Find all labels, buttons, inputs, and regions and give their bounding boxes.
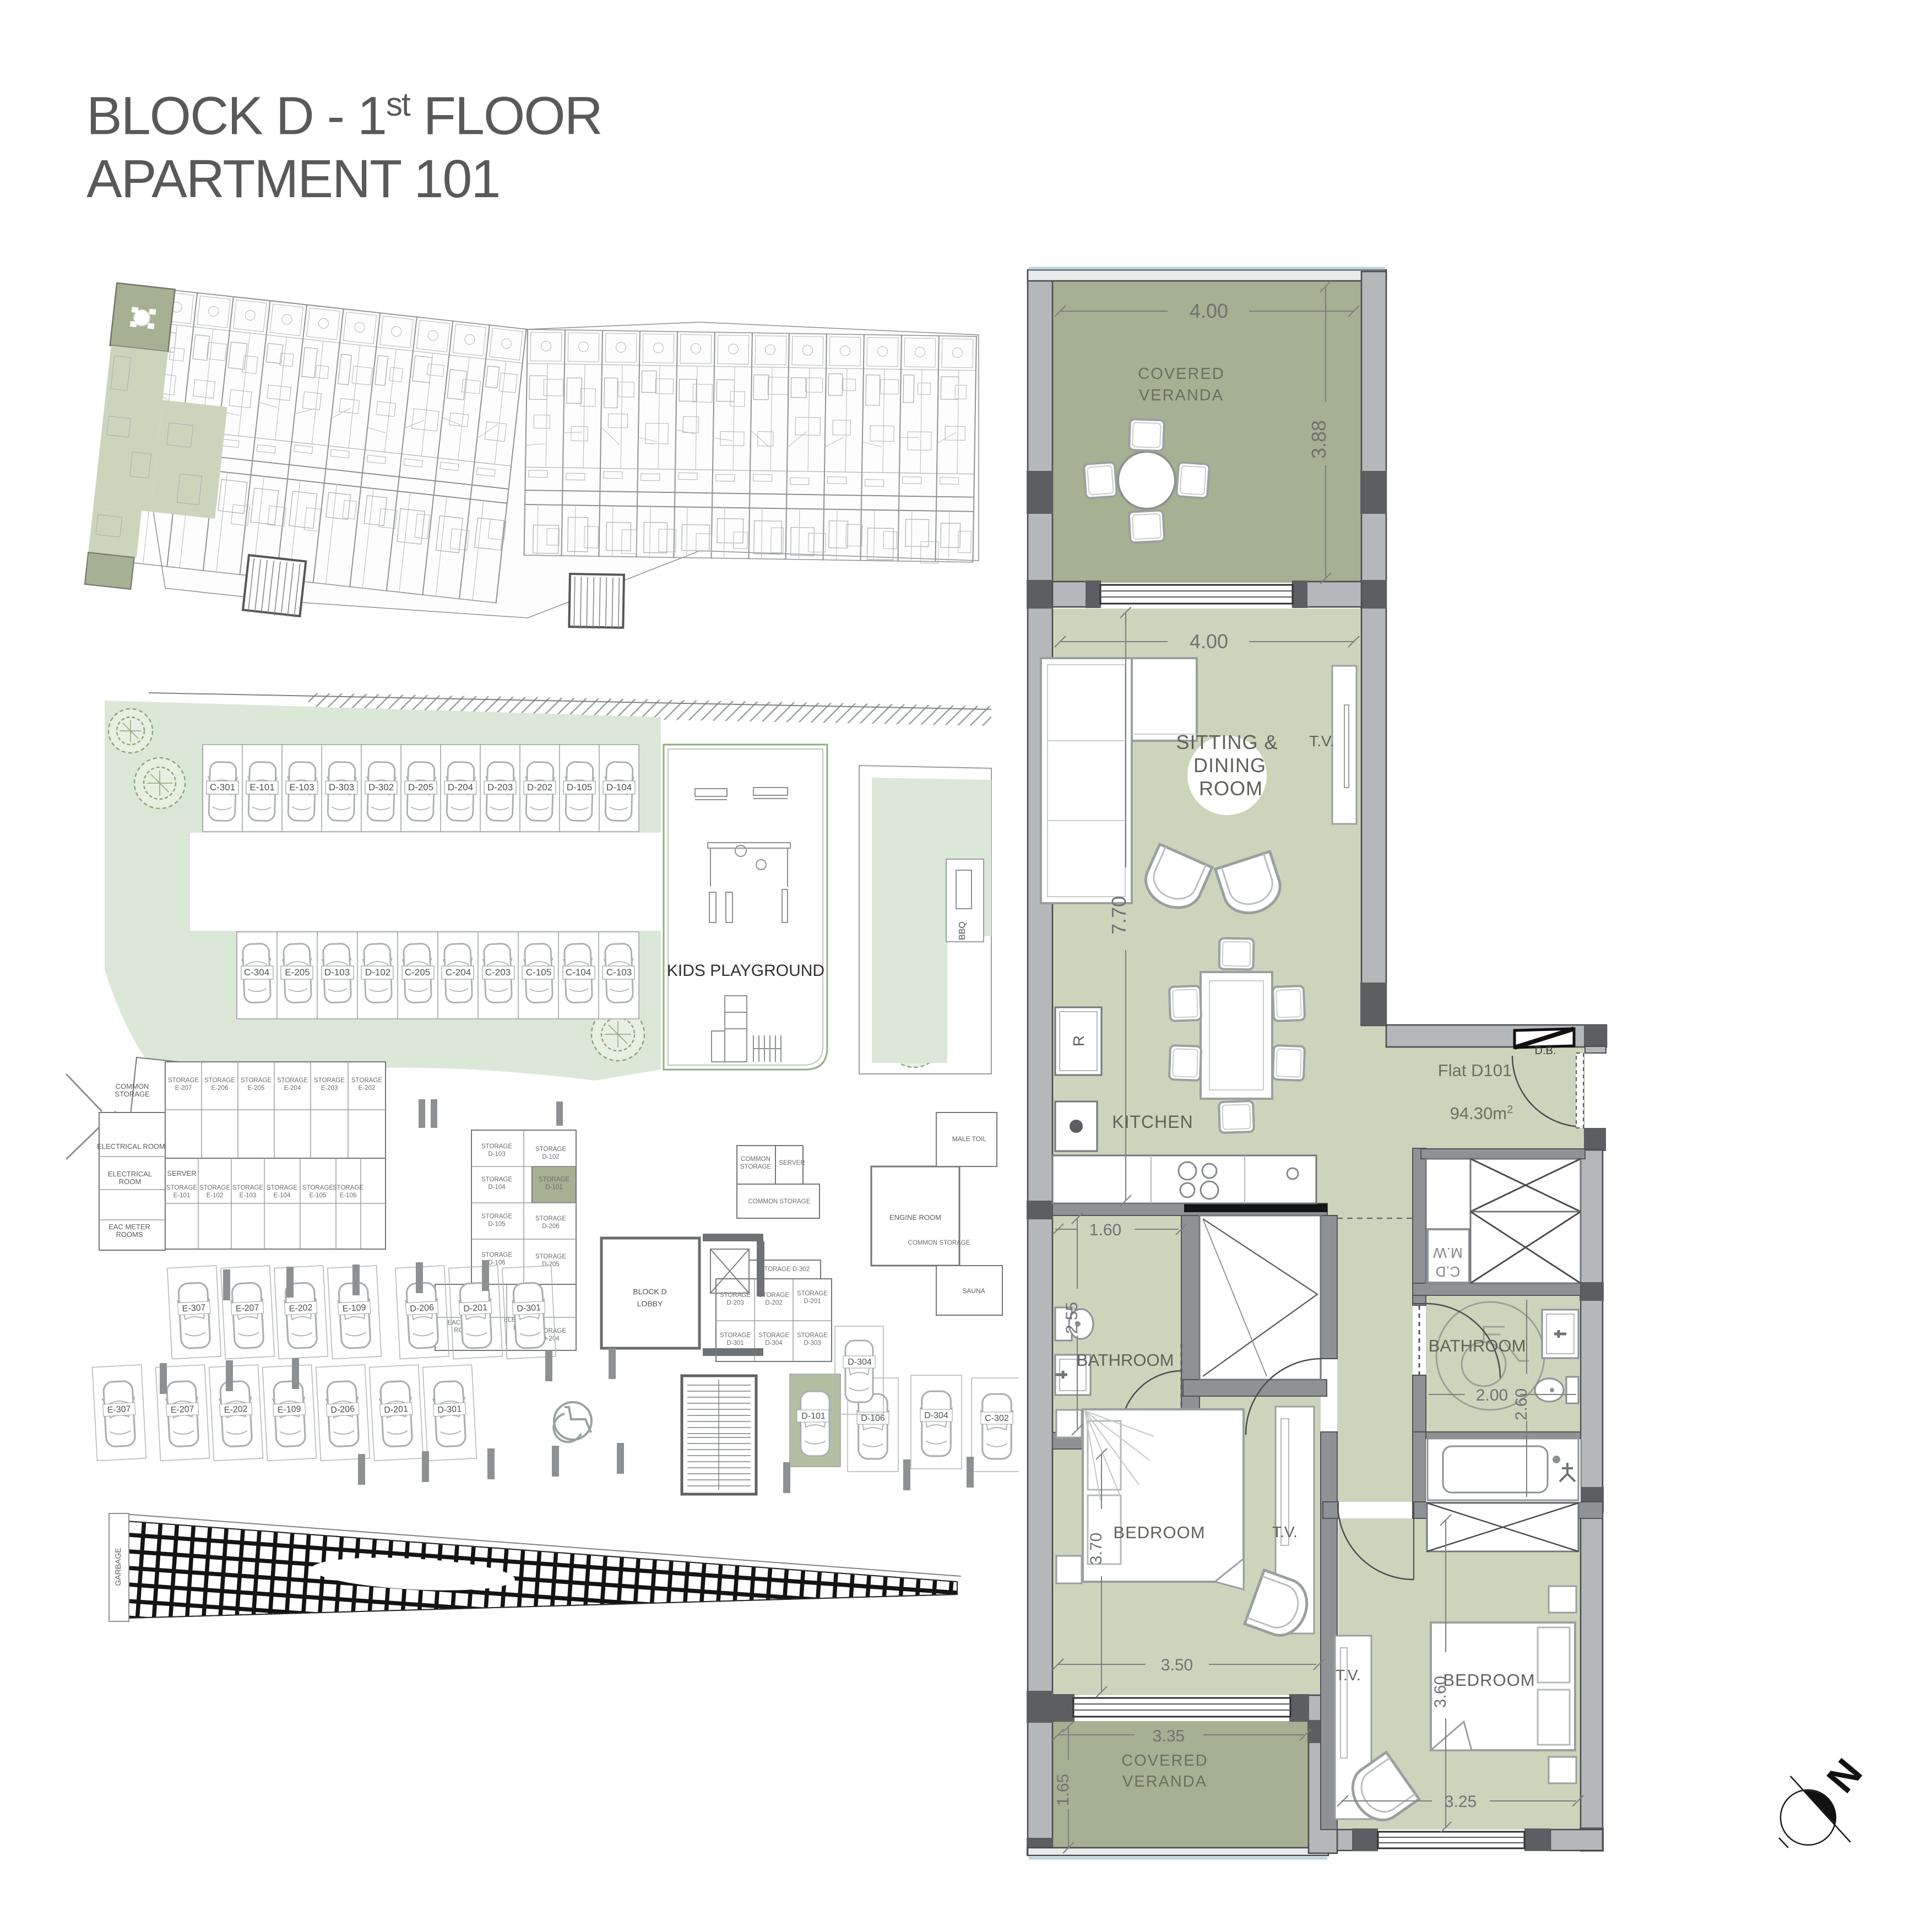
svg-text:D-201: D-201 — [804, 1298, 821, 1305]
svg-text:D-301: D-301 — [437, 1404, 462, 1415]
svg-text:DINING: DINING — [1193, 754, 1266, 777]
svg-text:D-203: D-203 — [726, 1300, 744, 1306]
svg-text:D.B.: D.B. — [1535, 1045, 1556, 1057]
svg-text:KIDS PLAYGROUND: KIDS PLAYGROUND — [667, 962, 824, 980]
svg-text:STORAGE: STORAGE — [535, 1215, 566, 1222]
svg-text:VERANDA: VERANDA — [1139, 387, 1224, 404]
svg-text:C-105: C-105 — [526, 967, 551, 978]
svg-text:E-103: E-103 — [240, 1192, 257, 1199]
svg-text:D-301: D-301 — [726, 1340, 744, 1347]
svg-text:E-202: E-202 — [359, 1085, 376, 1092]
svg-text:C-103: C-103 — [606, 967, 632, 978]
svg-text:4.00: 4.00 — [1190, 630, 1228, 653]
svg-text:ELECTRICAL ROOM: ELECTRICAL ROOM — [97, 1142, 165, 1150]
svg-text:ROOMS: ROOMS — [116, 1230, 143, 1239]
svg-text:1.65: 1.65 — [1054, 1774, 1072, 1806]
svg-text:2.00: 2.00 — [1476, 1386, 1508, 1404]
svg-text:3.70: 3.70 — [1087, 1533, 1105, 1565]
svg-text:E-202: E-202 — [224, 1404, 248, 1415]
svg-text:E-203: E-203 — [321, 1085, 338, 1092]
svg-text:E-104: E-104 — [274, 1192, 291, 1199]
svg-text:D-102: D-102 — [542, 1154, 559, 1160]
svg-text:4.00: 4.00 — [1190, 300, 1228, 322]
svg-text:STORAGE: STORAGE — [351, 1077, 382, 1084]
svg-text:D-304: D-304 — [924, 1411, 948, 1420]
svg-text:E-207: E-207 — [170, 1404, 194, 1415]
svg-text:D-303: D-303 — [804, 1340, 821, 1347]
svg-text:ELECTRICAL: ELECTRICAL — [108, 1170, 152, 1178]
svg-text:1.60: 1.60 — [1089, 1221, 1121, 1239]
svg-text:E-101: E-101 — [249, 782, 274, 793]
svg-text:E-106: E-106 — [340, 1192, 357, 1199]
svg-text:D-102: D-102 — [365, 967, 390, 978]
svg-text:C-301: C-301 — [210, 782, 235, 793]
svg-text:D-105: D-105 — [488, 1221, 505, 1228]
svg-text:STORAGE D-302: STORAGE D-302 — [760, 1266, 810, 1273]
svg-text:BATHROOM: BATHROOM — [1429, 1336, 1526, 1355]
svg-text:3.25: 3.25 — [1445, 1793, 1477, 1811]
svg-text:3.88: 3.88 — [1307, 420, 1330, 459]
svg-text:STORAGE: STORAGE — [535, 1146, 566, 1153]
svg-text:D-304: D-304 — [848, 1358, 872, 1367]
svg-text:SERVER: SERVER — [779, 1160, 805, 1166]
svg-text:N: N — [1819, 1751, 1871, 1801]
svg-text:2.55: 2.55 — [1063, 1302, 1081, 1334]
svg-text:COMMON STORAGE: COMMON STORAGE — [908, 1240, 970, 1246]
svg-text:C-302: C-302 — [985, 1414, 1009, 1423]
svg-text:Flat D101: Flat D101 — [1438, 1061, 1512, 1080]
svg-text:E-207: E-207 — [175, 1085, 192, 1092]
svg-text:COVERED: COVERED — [1138, 365, 1224, 383]
svg-text:STORAGE: STORAGE — [277, 1077, 308, 1084]
svg-text:E-206: E-206 — [211, 1085, 229, 1092]
svg-text:STORAGE: STORAGE — [199, 1185, 230, 1191]
svg-text:C.D: C.D — [1436, 1263, 1461, 1280]
svg-text:C-203: C-203 — [485, 967, 511, 978]
svg-text:E-202: E-202 — [289, 1303, 313, 1314]
svg-text:E-103: E-103 — [289, 782, 314, 793]
svg-text:STORAGE: STORAGE — [241, 1077, 272, 1084]
svg-text:SERVER: SERVER — [167, 1169, 196, 1177]
svg-text:ENGINE ROOM: ENGINE ROOM — [889, 1213, 941, 1222]
svg-text:E-109: E-109 — [277, 1404, 301, 1415]
svg-text:STORAGE: STORAGE — [481, 1143, 512, 1150]
svg-text:D-303: D-303 — [329, 782, 354, 793]
svg-text:E-205: E-205 — [248, 1085, 265, 1092]
svg-text:STORAGE: STORAGE — [314, 1077, 345, 1084]
svg-text:BEDROOM: BEDROOM — [1443, 1670, 1535, 1690]
svg-text:D-104: D-104 — [488, 1184, 506, 1191]
svg-text:STORAGE: STORAGE — [758, 1332, 789, 1339]
svg-text:LOBBY: LOBBY — [637, 1299, 663, 1308]
svg-text:COMMON STORAGE: COMMON STORAGE — [748, 1198, 811, 1205]
svg-text:STORAGE: STORAGE — [168, 1077, 199, 1084]
svg-text:MALE TOIL: MALE TOIL — [952, 1135, 987, 1143]
svg-text:D-202: D-202 — [527, 782, 552, 793]
svg-text:D-106: D-106 — [861, 1414, 885, 1423]
svg-text:D-206: D-206 — [330, 1404, 355, 1415]
svg-text:SAUNA: SAUNA — [962, 1287, 985, 1295]
svg-text:C-205: C-205 — [405, 967, 430, 978]
svg-text:D-103: D-103 — [488, 1151, 505, 1158]
svg-text:STORAGE: STORAGE — [232, 1185, 263, 1191]
svg-text:STORAGE: STORAGE — [481, 1213, 512, 1220]
svg-text:E-307: E-307 — [107, 1404, 131, 1415]
svg-text:D-104: D-104 — [606, 782, 632, 793]
svg-text:STORAGE: STORAGE — [115, 1090, 150, 1098]
svg-text:KITCHEN: KITCHEN — [1112, 1112, 1193, 1132]
svg-text:STORAGE: STORAGE — [267, 1185, 297, 1191]
svg-text:R: R — [1070, 1035, 1087, 1046]
svg-text:94.30m2: 94.30m2 — [1450, 1104, 1513, 1123]
svg-text:C-204: C-204 — [446, 967, 471, 978]
svg-text:3.60: 3.60 — [1431, 1676, 1450, 1708]
svg-text:T.V.: T.V. — [1309, 732, 1334, 750]
svg-text:STORAGE: STORAGE — [166, 1185, 197, 1191]
svg-text:D-301: D-301 — [517, 1303, 541, 1314]
svg-text:E-307: E-307 — [182, 1303, 206, 1314]
svg-text:D-106: D-106 — [488, 1260, 505, 1266]
svg-text:3.50: 3.50 — [1161, 1656, 1193, 1674]
svg-text:D-103: D-103 — [324, 967, 350, 978]
svg-text:VERANDA: VERANDA — [1122, 1773, 1207, 1790]
svg-text:STORAGE: STORAGE — [481, 1176, 512, 1183]
svg-text:D-304: D-304 — [765, 1340, 783, 1347]
svg-text:ROOM: ROOM — [1199, 777, 1263, 800]
svg-text:STORAGE: STORAGE — [740, 1164, 771, 1170]
svg-text:STORAGE: STORAGE — [302, 1185, 333, 1191]
svg-text:D-201: D-201 — [463, 1303, 488, 1314]
svg-text:D-101: D-101 — [801, 1412, 826, 1421]
svg-text:GARBAGE: GARBAGE — [113, 1548, 122, 1586]
svg-text:M.W: M.W — [1433, 1245, 1463, 1261]
svg-text:EAC METER: EAC METER — [108, 1223, 150, 1231]
svg-text:T.V.: T.V. — [1272, 1523, 1298, 1540]
svg-text:D-101: D-101 — [545, 1184, 562, 1191]
svg-text:E-105: E-105 — [310, 1192, 327, 1199]
svg-text:D-204: D-204 — [448, 782, 473, 793]
svg-text:STORAGE: STORAGE — [481, 1252, 512, 1258]
svg-text:D-206: D-206 — [410, 1303, 435, 1314]
svg-text:D-206: D-206 — [542, 1223, 559, 1230]
svg-text:D-105: D-105 — [567, 782, 592, 793]
svg-text:3.35: 3.35 — [1153, 1727, 1185, 1745]
svg-text:E-102: E-102 — [207, 1192, 224, 1199]
svg-text:C-104: C-104 — [566, 967, 591, 978]
svg-text:BEDROOM: BEDROOM — [1113, 1523, 1205, 1542]
svg-text:COMMON: COMMON — [741, 1156, 770, 1163]
svg-text:STORAGE: STORAGE — [333, 1185, 363, 1191]
svg-text:C-304: C-304 — [244, 967, 269, 978]
svg-text:7.70: 7.70 — [1108, 896, 1130, 935]
svg-text:T.V.: T.V. — [1336, 1667, 1361, 1684]
svg-text:COMMON: COMMON — [116, 1082, 149, 1090]
svg-text:D-302: D-302 — [368, 782, 394, 793]
svg-text:STORAGE: STORAGE — [535, 1253, 566, 1260]
svg-text:D-205: D-205 — [408, 782, 433, 793]
svg-text:BLOCK D: BLOCK D — [633, 1287, 666, 1296]
svg-text:STORAGE: STORAGE — [720, 1332, 751, 1339]
svg-text:STORAGE: STORAGE — [204, 1077, 235, 1084]
svg-text:E-207: E-207 — [235, 1303, 259, 1314]
svg-text:D-201: D-201 — [384, 1404, 409, 1415]
svg-text:D-202: D-202 — [765, 1300, 782, 1306]
svg-text:STORAGE: STORAGE — [539, 1176, 569, 1183]
svg-text:E-109: E-109 — [342, 1303, 366, 1314]
svg-text:ROOM: ROOM — [119, 1177, 141, 1186]
svg-text:E-101: E-101 — [173, 1192, 191, 1199]
svg-text:COVERED: COVERED — [1121, 1752, 1208, 1770]
svg-text:STORAGE: STORAGE — [797, 1290, 828, 1297]
svg-text:BATHROOM: BATHROOM — [1077, 1350, 1174, 1370]
svg-text:BBQ: BBQ — [958, 921, 967, 940]
svg-text:STORAGE: STORAGE — [797, 1332, 828, 1339]
svg-text:D-203: D-203 — [487, 782, 513, 793]
svg-text:E-205: E-205 — [285, 967, 310, 978]
svg-text:SITTING &: SITTING & — [1176, 731, 1278, 753]
svg-text:2.60: 2.60 — [1512, 1388, 1531, 1420]
svg-text:E-204: E-204 — [284, 1085, 301, 1092]
